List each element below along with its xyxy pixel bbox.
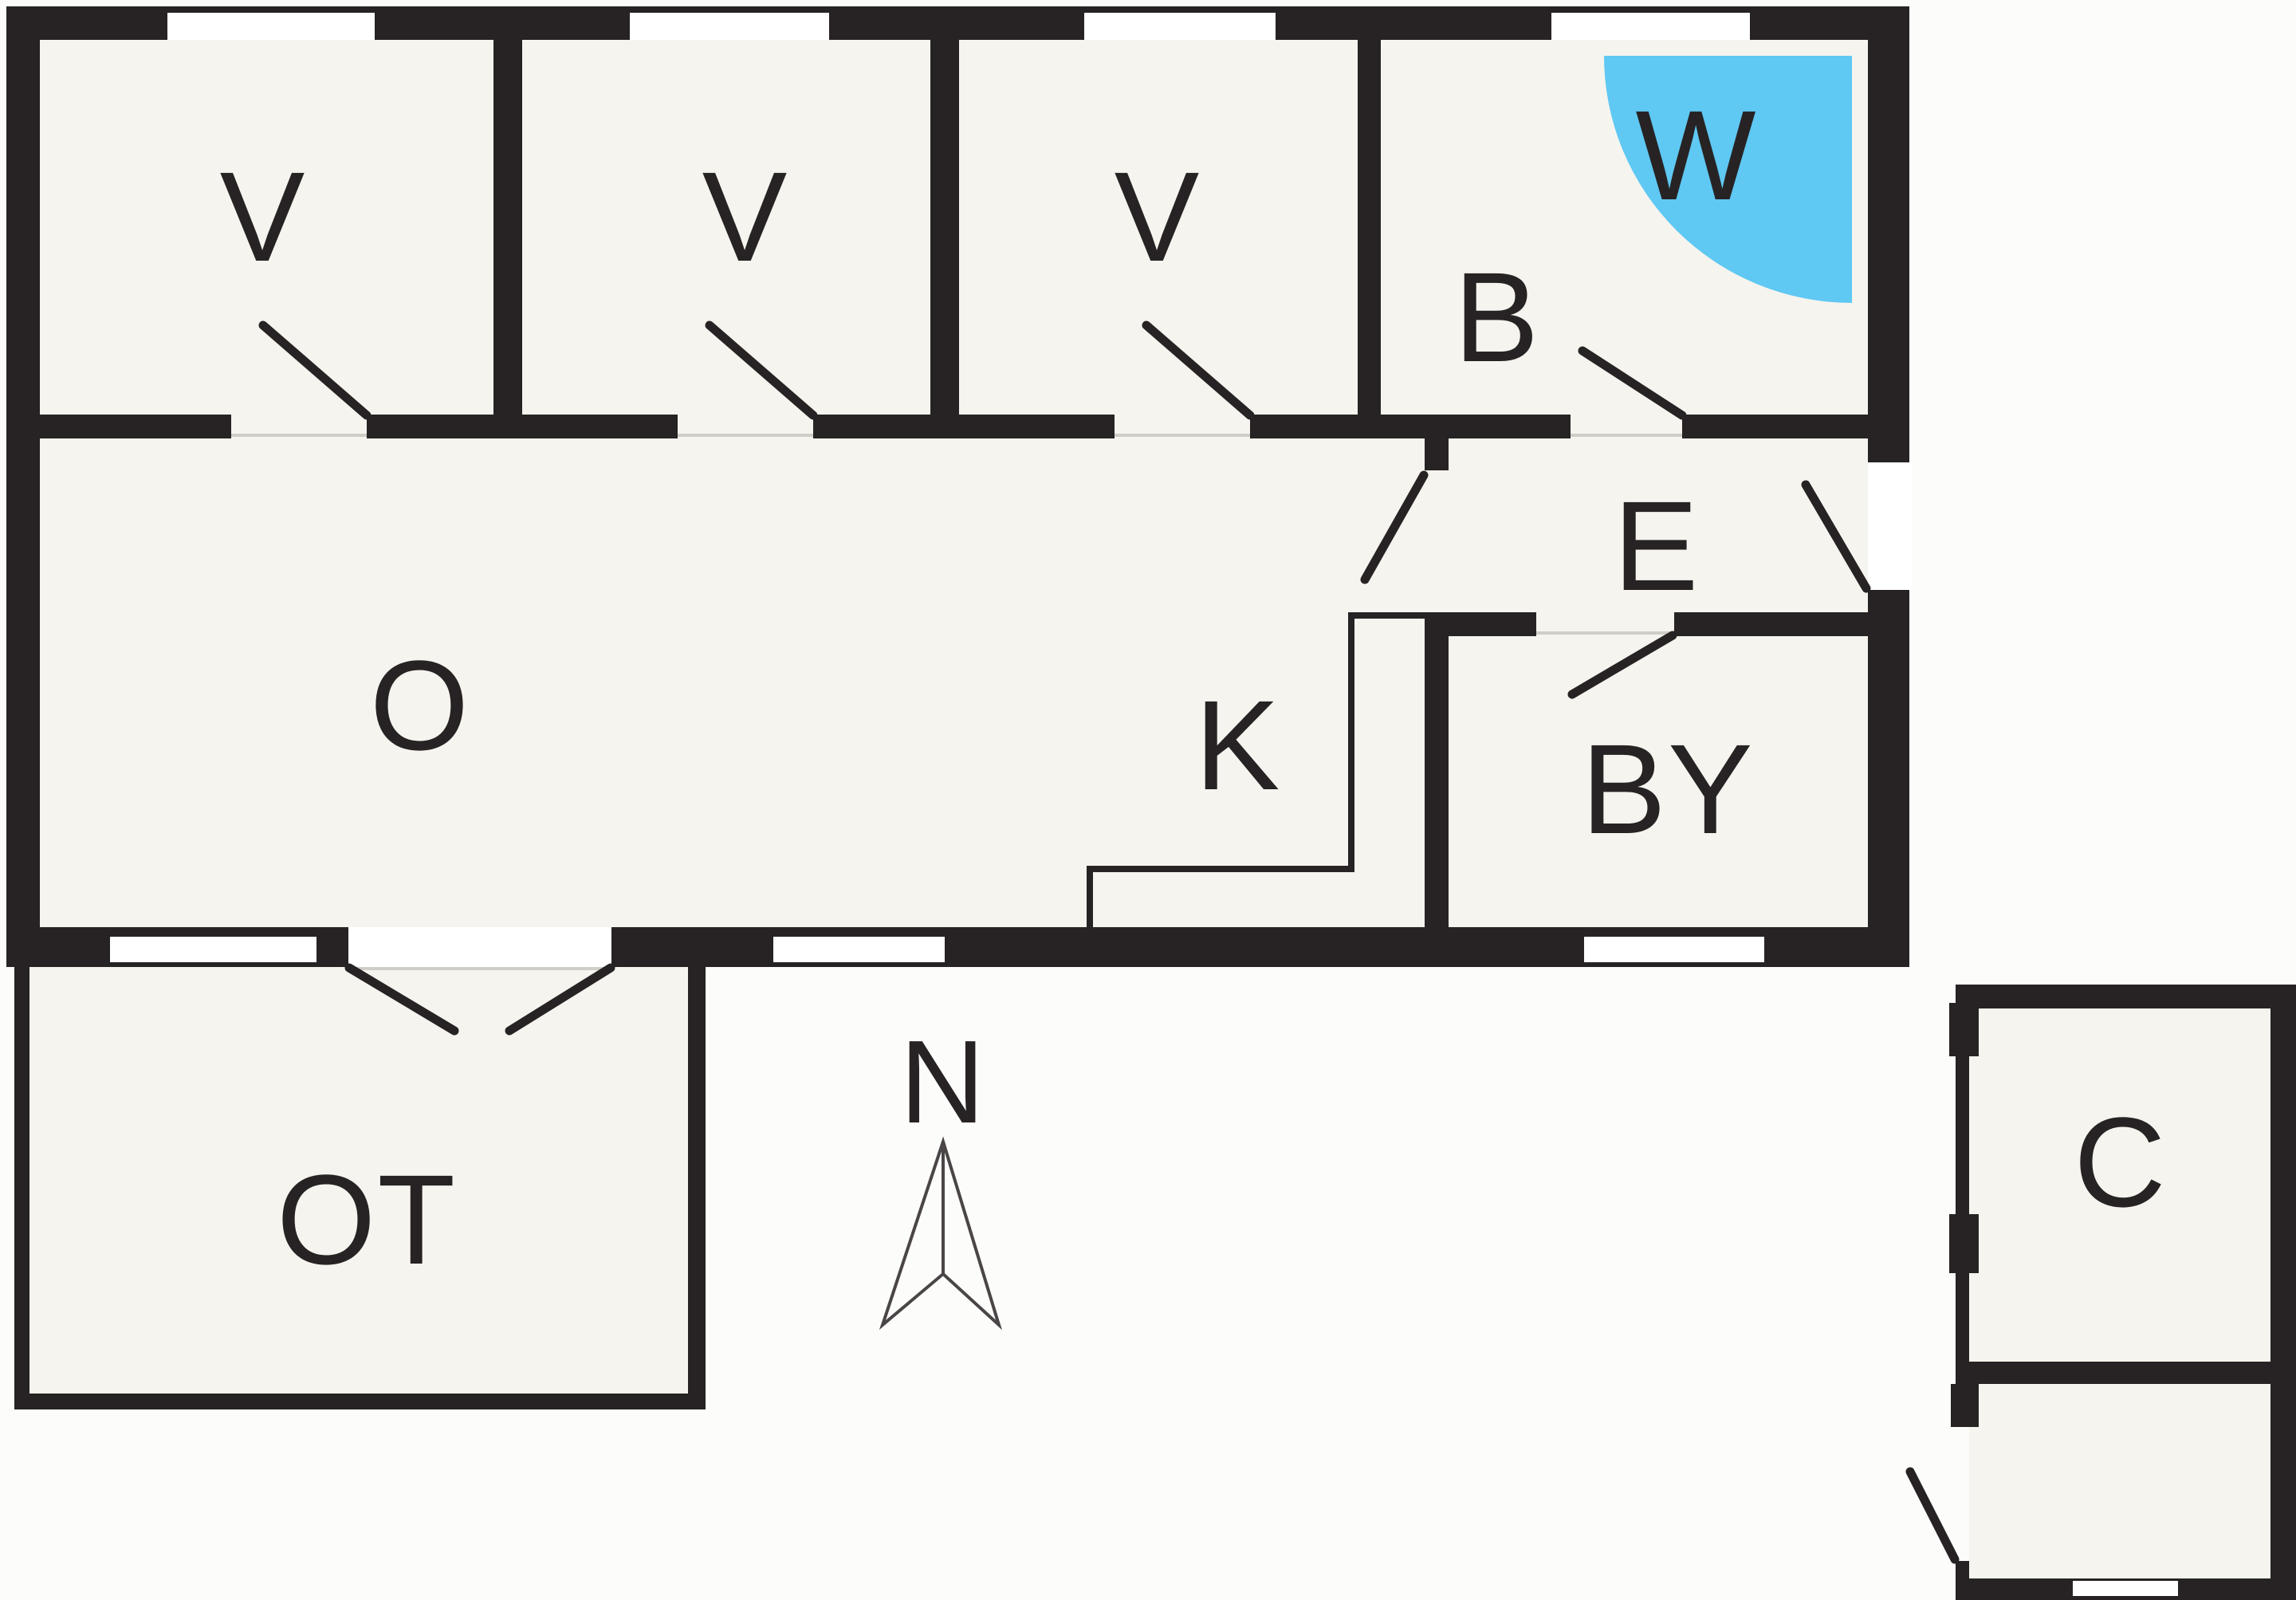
room-label-k: K: [1195, 682, 1282, 809]
door-swing-v1: [263, 325, 367, 415]
door-swing-shed: [1910, 1472, 1955, 1559]
room-label-v3: V: [1115, 153, 1201, 281]
north-arrow-icon: [883, 1142, 999, 1325]
door-swing-v2: [710, 325, 813, 415]
room-label-w: W: [1635, 92, 1757, 219]
door-swing-entry: [1806, 485, 1866, 588]
compass-north-label: N: [900, 1024, 987, 1142]
room-label-b: B: [1454, 254, 1541, 381]
room-label-ot: OT: [277, 1156, 457, 1284]
door-swing-v3: [1146, 325, 1250, 415]
door-swing-b: [1582, 351, 1682, 415]
room-label-v1: V: [220, 153, 307, 281]
door-swing-terrace-left: [349, 968, 454, 1031]
room-label-v2: V: [702, 153, 789, 281]
floor-plan: V V V B W E K O BY OT C N: [0, 0, 2296, 1600]
room-label-by: BY: [1581, 725, 1754, 853]
door-swing-by: [1572, 635, 1673, 694]
door-swing-terrace-right: [509, 968, 611, 1031]
room-label-c: C: [2074, 1099, 2168, 1226]
door-swing-o-e: [1365, 475, 1424, 580]
room-label-o: O: [370, 642, 470, 769]
room-label-e: E: [1614, 482, 1700, 610]
